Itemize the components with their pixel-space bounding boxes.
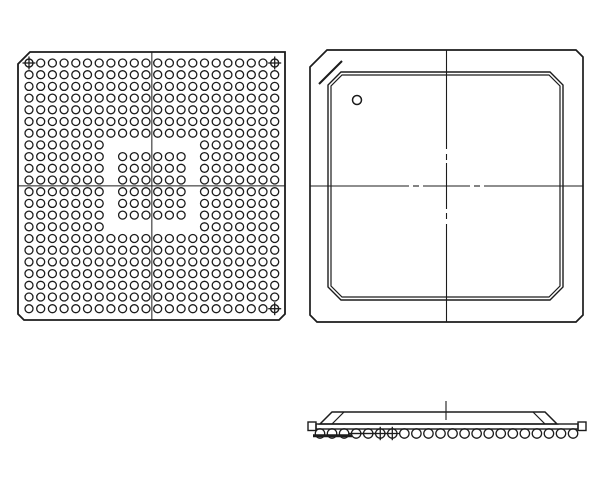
solder-ball xyxy=(48,270,56,278)
solder-ball xyxy=(177,246,185,254)
solder-ball xyxy=(84,188,92,196)
solder-ball xyxy=(189,82,197,90)
solder-ball xyxy=(119,153,127,161)
solder-ball xyxy=(201,118,209,126)
solder-ball xyxy=(60,106,68,114)
solder-ball xyxy=(212,164,220,172)
solder-ball xyxy=(224,141,232,149)
solder-ball xyxy=(119,246,127,254)
solder-ball xyxy=(271,82,279,90)
solder-ball xyxy=(224,235,232,243)
solder-ball xyxy=(236,118,244,126)
solder-ball xyxy=(37,106,45,114)
a1-corner-chamfer-line xyxy=(319,61,342,84)
solder-ball xyxy=(224,118,232,126)
solder-ball xyxy=(259,82,267,90)
solder-ball xyxy=(154,281,162,289)
solder-ball xyxy=(130,235,138,243)
solder-ball xyxy=(60,258,68,266)
solder-ball xyxy=(177,235,185,243)
solder-ball xyxy=(165,199,173,207)
solder-ball xyxy=(107,270,115,278)
solder-ball xyxy=(130,199,138,207)
solder-ball xyxy=(119,94,127,102)
solder-ball xyxy=(119,270,127,278)
solder-ball xyxy=(25,71,33,79)
solder-ball xyxy=(271,235,279,243)
solder-ball xyxy=(119,71,127,79)
solder-ball xyxy=(107,258,115,266)
solder-ball xyxy=(236,293,244,301)
solder-ball xyxy=(142,281,150,289)
solder-ball xyxy=(72,223,80,231)
solder-ball xyxy=(72,188,80,196)
solder-ball xyxy=(165,129,173,137)
solder-ball xyxy=(48,106,56,114)
solder-ball xyxy=(142,164,150,172)
solder-ball xyxy=(48,258,56,266)
solder-ball xyxy=(84,270,92,278)
solder-ball xyxy=(84,235,92,243)
solder-ball xyxy=(142,258,150,266)
solder-ball xyxy=(37,94,45,102)
solder-ball xyxy=(48,199,56,207)
solder-ball xyxy=(37,258,45,266)
solder-ball xyxy=(84,281,92,289)
solder-ball xyxy=(119,188,127,196)
solder-ball xyxy=(37,188,45,196)
solder-ball xyxy=(177,153,185,161)
solder-ball xyxy=(25,153,33,161)
solder-ball xyxy=(95,106,103,114)
solder-ball xyxy=(95,293,103,301)
solder-ball xyxy=(177,82,185,90)
solder-ball xyxy=(95,129,103,137)
solder-ball xyxy=(130,118,138,126)
solder-ball xyxy=(25,141,33,149)
solder-ball xyxy=(201,305,209,313)
solder-ball xyxy=(95,71,103,79)
solder-ball xyxy=(142,235,150,243)
solder-ball xyxy=(107,94,115,102)
side-view-solder-ball xyxy=(460,429,469,438)
solder-ball xyxy=(48,281,56,289)
solder-ball xyxy=(130,153,138,161)
solder-ball xyxy=(236,59,244,67)
solder-ball xyxy=(119,118,127,126)
solder-ball xyxy=(247,270,255,278)
solder-ball xyxy=(25,258,33,266)
solder-ball xyxy=(201,223,209,231)
solder-ball xyxy=(189,258,197,266)
solder-ball xyxy=(165,59,173,67)
solder-ball xyxy=(48,211,56,219)
solder-ball xyxy=(201,281,209,289)
solder-ball xyxy=(95,211,103,219)
solder-ball xyxy=(236,106,244,114)
solder-ball xyxy=(60,199,68,207)
solder-ball xyxy=(60,94,68,102)
solder-ball xyxy=(236,129,244,137)
solder-ball xyxy=(130,305,138,313)
solder-ball xyxy=(271,153,279,161)
solder-ball xyxy=(107,59,115,67)
solder-ball xyxy=(130,258,138,266)
solder-ball xyxy=(119,82,127,90)
mold-chamfer-line-right xyxy=(533,412,545,424)
solder-ball xyxy=(48,153,56,161)
solder-ball xyxy=(224,211,232,219)
solder-ball xyxy=(259,258,267,266)
solder-ball xyxy=(154,176,162,184)
fiducial-crosshair-icon xyxy=(268,57,281,70)
solder-ball xyxy=(189,235,197,243)
solder-ball xyxy=(48,94,56,102)
bga-side-view xyxy=(308,401,586,440)
solder-ball xyxy=(165,71,173,79)
solder-ball xyxy=(177,188,185,196)
bga-bottom-view xyxy=(18,52,285,320)
solder-ball xyxy=(259,164,267,172)
solder-ball xyxy=(84,153,92,161)
solder-ball xyxy=(189,129,197,137)
solder-ball xyxy=(60,235,68,243)
solder-ball xyxy=(236,71,244,79)
solder-ball xyxy=(25,82,33,90)
solder-ball xyxy=(107,281,115,289)
solder-ball xyxy=(201,59,209,67)
solder-ball xyxy=(142,305,150,313)
solder-ball xyxy=(119,59,127,67)
solder-ball xyxy=(72,246,80,254)
solder-ball xyxy=(60,164,68,172)
side-view-solder-ball xyxy=(484,429,493,438)
solder-ball xyxy=(224,199,232,207)
solder-ball xyxy=(224,82,232,90)
solder-ball xyxy=(177,293,185,301)
solder-ball xyxy=(95,82,103,90)
solder-ball xyxy=(201,270,209,278)
solder-ball xyxy=(201,293,209,301)
solder-ball xyxy=(84,82,92,90)
solder-ball xyxy=(271,223,279,231)
solder-ball xyxy=(189,71,197,79)
solder-ball xyxy=(154,305,162,313)
solder-ball xyxy=(48,129,56,137)
solder-ball xyxy=(25,129,33,137)
solder-ball xyxy=(60,82,68,90)
solder-ball xyxy=(95,176,103,184)
side-view-solder-ball xyxy=(424,429,433,438)
solder-ball xyxy=(37,176,45,184)
solder-ball xyxy=(165,94,173,102)
solder-ball xyxy=(95,258,103,266)
solder-ball xyxy=(224,71,232,79)
solder-ball xyxy=(259,199,267,207)
solder-ball xyxy=(247,141,255,149)
solder-ball xyxy=(189,305,197,313)
solder-ball xyxy=(95,59,103,67)
solder-ball xyxy=(25,188,33,196)
solder-ball xyxy=(201,129,209,137)
solder-ball xyxy=(236,199,244,207)
solder-ball xyxy=(95,153,103,161)
solder-ball xyxy=(212,258,220,266)
solder-ball xyxy=(37,305,45,313)
solder-ball xyxy=(259,94,267,102)
solder-ball xyxy=(165,118,173,126)
solder-ball xyxy=(189,59,197,67)
solder-ball xyxy=(154,153,162,161)
solder-ball xyxy=(271,281,279,289)
solder-ball xyxy=(247,176,255,184)
solder-ball xyxy=(201,176,209,184)
solder-ball xyxy=(130,281,138,289)
solder-ball xyxy=(84,164,92,172)
solder-ball xyxy=(95,164,103,172)
solder-ball xyxy=(48,82,56,90)
solder-ball xyxy=(236,94,244,102)
solder-ball xyxy=(142,270,150,278)
solder-ball xyxy=(95,94,103,102)
solder-ball xyxy=(201,258,209,266)
solder-ball xyxy=(130,176,138,184)
solder-ball xyxy=(212,118,220,126)
solder-ball xyxy=(212,71,220,79)
solder-ball xyxy=(154,235,162,243)
bga-package-drawing xyxy=(0,0,600,500)
solder-ball xyxy=(37,246,45,254)
solder-ball xyxy=(177,59,185,67)
solder-ball xyxy=(212,188,220,196)
solder-ball xyxy=(201,235,209,243)
solder-ball xyxy=(119,305,127,313)
solder-ball xyxy=(119,258,127,266)
solder-ball xyxy=(72,153,80,161)
solder-ball xyxy=(212,293,220,301)
side-view-solder-ball xyxy=(472,429,481,438)
solder-ball xyxy=(142,188,150,196)
solder-ball xyxy=(259,153,267,161)
solder-ball xyxy=(259,71,267,79)
solder-ball xyxy=(201,106,209,114)
solder-ball xyxy=(107,129,115,137)
solder-ball xyxy=(154,71,162,79)
solder-ball xyxy=(212,211,220,219)
solder-ball xyxy=(37,129,45,137)
solder-ball xyxy=(212,270,220,278)
bga-top-view xyxy=(310,50,583,322)
substrate-end-cap-right xyxy=(578,422,586,431)
solder-ball xyxy=(212,153,220,161)
solder-ball xyxy=(165,305,173,313)
solder-ball xyxy=(37,199,45,207)
solder-ball xyxy=(165,270,173,278)
solder-ball xyxy=(177,106,185,114)
solder-ball xyxy=(142,293,150,301)
solder-ball xyxy=(60,118,68,126)
solder-ball xyxy=(107,305,115,313)
solder-ball xyxy=(72,94,80,102)
solder-ball xyxy=(247,211,255,219)
solder-ball xyxy=(177,258,185,266)
side-view-solder-ball xyxy=(436,429,445,438)
solder-ball xyxy=(142,82,150,90)
solder-ball xyxy=(72,258,80,266)
solder-ball xyxy=(247,82,255,90)
solder-ball xyxy=(84,176,92,184)
solder-ball xyxy=(95,281,103,289)
solder-ball xyxy=(72,71,80,79)
solder-ball xyxy=(25,211,33,219)
solder-ball xyxy=(201,94,209,102)
solder-ball xyxy=(25,246,33,254)
solder-ball xyxy=(72,305,80,313)
solder-ball xyxy=(37,223,45,231)
solder-ball xyxy=(48,71,56,79)
solder-ball xyxy=(25,118,33,126)
solder-ball xyxy=(60,141,68,149)
solder-ball xyxy=(142,153,150,161)
solder-ball xyxy=(154,188,162,196)
solder-ball xyxy=(236,270,244,278)
solder-ball xyxy=(177,71,185,79)
solder-ball xyxy=(189,246,197,254)
solder-ball xyxy=(60,59,68,67)
solder-ball xyxy=(154,106,162,114)
solder-ball xyxy=(189,106,197,114)
solder-ball xyxy=(72,235,80,243)
solder-ball xyxy=(119,164,127,172)
solder-ball xyxy=(165,281,173,289)
solder-ball xyxy=(165,106,173,114)
solder-ball xyxy=(95,305,103,313)
solder-ball xyxy=(177,129,185,137)
solder-ball xyxy=(271,118,279,126)
solder-ball xyxy=(247,94,255,102)
solder-ball xyxy=(95,118,103,126)
solder-ball xyxy=(201,164,209,172)
solder-ball xyxy=(130,129,138,137)
solder-ball xyxy=(271,94,279,102)
solder-ball xyxy=(72,199,80,207)
solder-ball xyxy=(236,141,244,149)
solder-ball xyxy=(165,176,173,184)
solder-ball xyxy=(48,176,56,184)
solder-ball xyxy=(236,153,244,161)
solder-ball xyxy=(48,59,56,67)
solder-ball xyxy=(224,293,232,301)
solder-ball xyxy=(247,164,255,172)
solder-ball xyxy=(271,188,279,196)
solder-ball xyxy=(212,59,220,67)
solder-ball xyxy=(25,235,33,243)
solder-ball xyxy=(259,223,267,231)
solder-ball xyxy=(271,176,279,184)
solder-ball xyxy=(37,141,45,149)
solder-ball xyxy=(224,129,232,137)
solder-ball xyxy=(72,281,80,289)
solder-ball xyxy=(271,258,279,266)
solder-ball xyxy=(259,106,267,114)
solder-ball xyxy=(177,199,185,207)
solder-ball xyxy=(201,141,209,149)
solder-ball xyxy=(212,129,220,137)
solder-ball xyxy=(271,199,279,207)
solder-ball xyxy=(247,305,255,313)
solder-ball xyxy=(165,246,173,254)
solder-ball xyxy=(236,164,244,172)
solder-ball xyxy=(259,270,267,278)
side-view-solder-ball xyxy=(412,429,421,438)
solder-ball xyxy=(247,118,255,126)
solder-ball xyxy=(84,106,92,114)
solder-ball xyxy=(224,153,232,161)
solder-ball xyxy=(119,199,127,207)
solder-ball xyxy=(72,293,80,301)
solder-ball xyxy=(154,129,162,137)
solder-ball xyxy=(95,199,103,207)
solder-ball xyxy=(60,223,68,231)
solder-ball xyxy=(119,211,127,219)
solder-ball xyxy=(107,235,115,243)
solder-ball xyxy=(142,59,150,67)
solder-ball xyxy=(154,246,162,254)
solder-ball xyxy=(107,106,115,114)
solder-ball xyxy=(25,199,33,207)
solder-ball xyxy=(201,153,209,161)
solder-ball xyxy=(72,118,80,126)
solder-ball xyxy=(259,305,267,313)
solder-ball xyxy=(107,246,115,254)
solder-ball xyxy=(177,211,185,219)
solder-ball xyxy=(84,305,92,313)
solder-ball xyxy=(95,188,103,196)
solder-ball xyxy=(259,118,267,126)
solder-ball xyxy=(177,118,185,126)
solder-ball xyxy=(60,71,68,79)
solder-ball xyxy=(165,258,173,266)
solder-ball xyxy=(25,293,33,301)
solder-ball xyxy=(165,82,173,90)
solder-ball xyxy=(224,223,232,231)
solder-ball xyxy=(84,94,92,102)
solder-ball xyxy=(142,106,150,114)
solder-ball xyxy=(165,153,173,161)
solder-ball xyxy=(154,59,162,67)
solder-ball xyxy=(236,235,244,243)
solder-ball xyxy=(84,293,92,301)
solder-ball xyxy=(247,246,255,254)
solder-ball xyxy=(177,164,185,172)
solder-ball xyxy=(37,211,45,219)
solder-ball xyxy=(201,82,209,90)
solder-ball xyxy=(259,246,267,254)
solder-ball xyxy=(247,258,255,266)
solder-ball xyxy=(247,223,255,231)
solder-ball xyxy=(236,281,244,289)
solder-ball xyxy=(212,141,220,149)
solder-ball xyxy=(48,305,56,313)
solder-ball xyxy=(130,164,138,172)
solder-ball xyxy=(224,94,232,102)
solder-ball xyxy=(119,129,127,137)
solder-ball xyxy=(247,188,255,196)
solder-ball xyxy=(37,153,45,161)
solder-ball xyxy=(107,293,115,301)
solder-ball xyxy=(201,188,209,196)
solder-ball xyxy=(25,164,33,172)
